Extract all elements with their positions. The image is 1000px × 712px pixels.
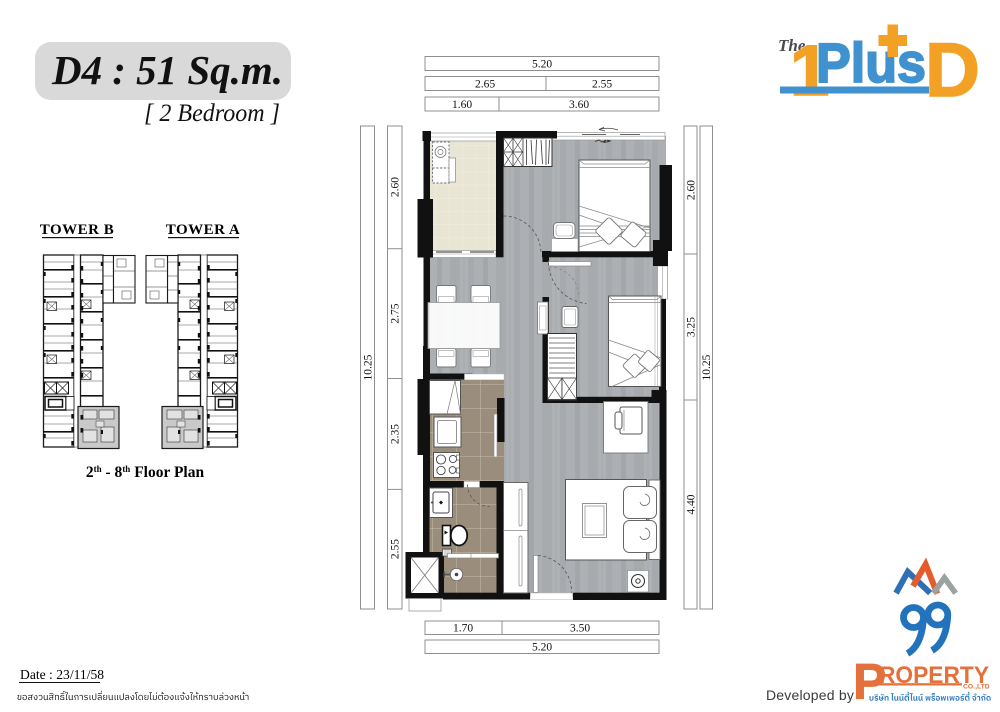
svg-text:[ 2 Bedroom ]: [ 2 Bedroom ] <box>144 100 280 127</box>
svg-text:5.20: 5.20 <box>532 59 552 71</box>
svg-text:2.75: 2.75 <box>390 303 402 323</box>
svg-text:TOWER A: TOWER A <box>166 222 241 238</box>
svg-text:4.40: 4.40 <box>686 494 698 514</box>
svg-text:Date : 23/11/58: Date : 23/11/58 <box>20 667 104 682</box>
svg-text:CO.,LTD: CO.,LTD <box>963 683 990 690</box>
svg-text:2.55: 2.55 <box>390 539 402 559</box>
svg-text:Developed by: Developed by <box>766 687 854 703</box>
svg-text:1.70: 1.70 <box>453 623 473 635</box>
svg-text:3.60: 3.60 <box>569 99 589 111</box>
svg-text:2.60: 2.60 <box>390 177 402 197</box>
svg-text:3.50: 3.50 <box>570 623 590 635</box>
svg-text:5.20: 5.20 <box>532 642 552 654</box>
svg-text:2.65: 2.65 <box>475 79 495 91</box>
svg-text:10.25: 10.25 <box>363 354 375 380</box>
svg-text:2.60: 2.60 <box>686 180 698 200</box>
svg-text:2.35: 2.35 <box>390 424 402 444</box>
svg-text:1.60: 1.60 <box>452 99 472 111</box>
svg-text:Plus: Plus <box>816 31 926 94</box>
svg-text:2.55: 2.55 <box>592 79 612 91</box>
svg-text:2th - 8th Floor Plan: 2th - 8th Floor Plan <box>86 464 205 481</box>
svg-text:3.25: 3.25 <box>686 317 698 337</box>
svg-text:D: D <box>925 28 980 113</box>
svg-text:D4 : 51 Sq.m.: D4 : 51 Sq.m. <box>51 47 283 93</box>
svg-text:TOWER B: TOWER B <box>40 222 115 238</box>
svg-text:10.25: 10.25 <box>701 354 713 380</box>
